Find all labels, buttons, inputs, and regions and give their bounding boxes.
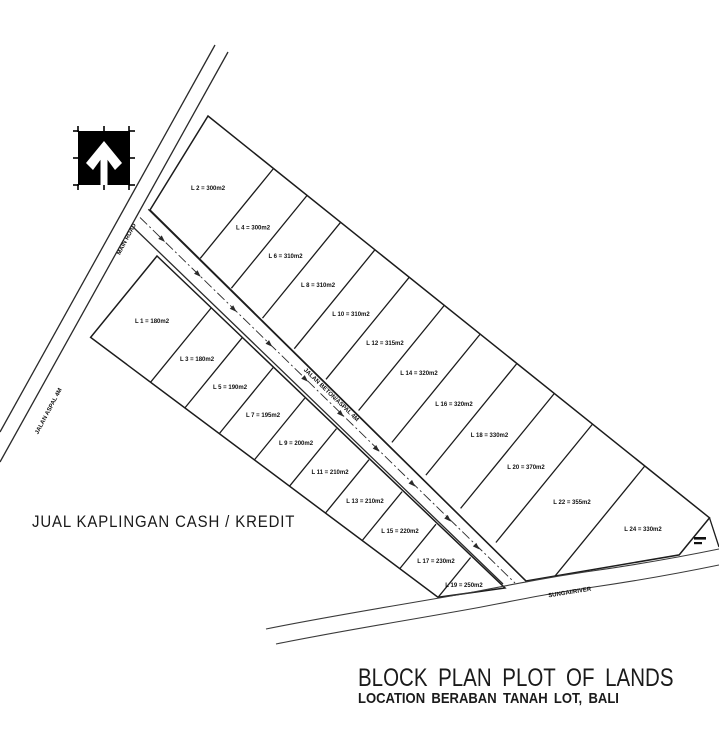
plot-label: L 11 = 210m2 [311,470,349,476]
plot-division-line [290,429,337,487]
plot-label: L 9 = 200m2 [279,441,314,447]
plot-division-line [326,460,370,513]
page-title: BLOCK PLAN PLOT OF LANDS [358,663,673,691]
river: SUNGAI/RIVER [266,549,719,644]
sale-banner-text: JUAL KAPLINGAN CASH / KREDIT [32,513,295,531]
plot-label: L 15 = 220m2 [381,529,419,535]
plot-label: L 12 = 315m2 [366,341,404,347]
plot-division-line [254,398,304,460]
river-label: SUNGAI/RIVER [548,587,592,600]
plot-label: L 18 = 330m2 [471,433,509,439]
plot-division-line [555,466,645,577]
plot-division-line [185,338,242,408]
flow-arrow-icon [444,515,453,523]
main-road-edge [0,52,228,462]
plot-label: L 17 = 230m2 [417,559,455,565]
main-road-label: MAIN ROAD [116,222,138,256]
plot-label: L 10 = 310m2 [332,312,370,318]
plot-division-line [710,518,719,547]
plot-label: L 3 = 180m2 [180,357,215,363]
plot-label: L 4 = 300m2 [236,226,271,232]
page-subtitle: LOCATION BERABAN TANAH LOT, BALI [358,690,619,706]
plot-label: L 5 = 190m2 [213,385,248,391]
plot-division-line [496,424,593,542]
plot-label: L 13 = 210m2 [346,499,384,505]
plot-label: L 24 = 330m2 [624,527,662,533]
top-plot-band: L 2 = 300m2 L 4 = 300m2 L 6 = 310m2 L 8 … [150,116,719,581]
plot-division-line [461,394,555,509]
river-bank-line [276,565,719,644]
plot-division-line [231,195,307,288]
plot-label: L 2 = 300m2 [191,186,226,192]
flow-arrow-icon [409,480,418,488]
plot-label: L 14 = 320m2 [400,371,438,377]
flow-arrow-icon [373,445,382,453]
plot-label: L 22 = 355m2 [553,500,591,506]
plot-label: L 16 = 320m2 [435,402,473,408]
plot-label: L 19 = 250m2 [445,583,483,589]
tiny-annotation-mark [694,542,702,544]
plot-division-line [426,364,517,476]
plot-division-line [219,368,273,434]
title-block: BLOCK PLAN PLOT OF LANDS LOCATION BERABA… [358,663,673,706]
plot-division-line [392,334,480,442]
flow-arrow-icon [473,543,482,551]
block-plan-canvas: MAIN ROAD JALAN ASPAL 4M JALAN BETON/ASP… [0,0,719,744]
plot-label: L 6 = 310m2 [268,254,303,260]
tiny-annotation-mark [694,537,706,540]
tiny-annotation [694,537,706,544]
plot-division-line [200,169,273,259]
main-road-label: JALAN ASPAL 4M [34,388,63,436]
plot-label: L 20 = 370m2 [507,465,545,471]
plot-label: L 1 = 180m2 [135,319,170,325]
access-road-label: JALAN BETON/ASPAL 4M [302,367,359,423]
plot-label: L 8 = 310m2 [301,283,336,289]
north-arrow-icon [73,126,135,190]
main-road-edge [0,45,215,432]
north-arrow-stem [101,151,108,185]
plot-label: L 7 = 195m2 [246,413,281,419]
